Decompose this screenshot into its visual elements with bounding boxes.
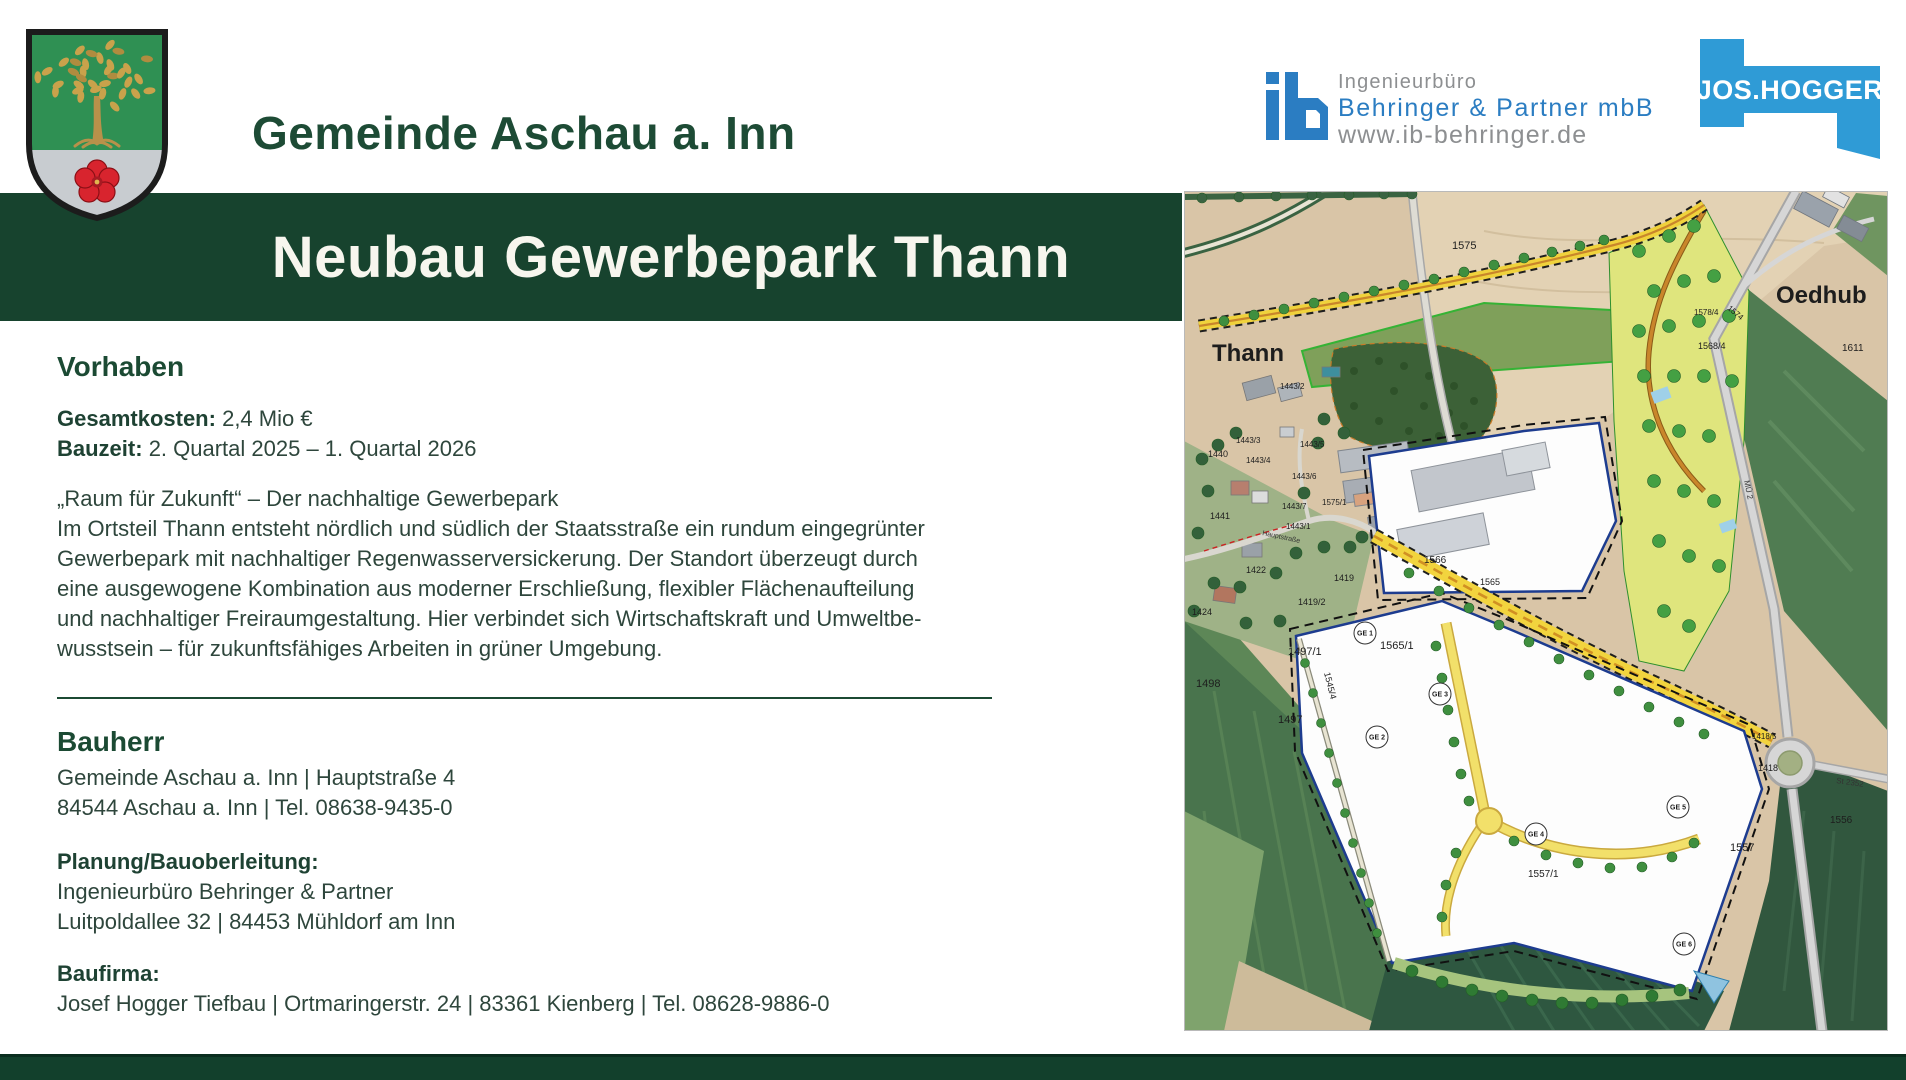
municipality-name: Gemeinde Aschau a. Inn [252, 106, 796, 160]
tree-icon [1192, 527, 1204, 539]
tree-icon [1678, 485, 1691, 498]
tree-icon [1434, 586, 1444, 596]
tree-icon [1466, 984, 1478, 996]
tree-icon [1407, 191, 1417, 199]
tree-icon [1456, 769, 1466, 779]
tree-icon [1547, 247, 1557, 257]
tree-icon [1443, 705, 1453, 715]
map-parcel-label: 1575/1 [1322, 498, 1347, 507]
map-parcel-label: 1565/1 [1380, 640, 1414, 652]
tree-icon [1309, 298, 1319, 308]
tree-icon [1584, 670, 1594, 680]
tree-icon [1699, 729, 1709, 739]
tree-icon [1240, 617, 1252, 629]
map-parcel-label: 1418/5 [1752, 732, 1777, 741]
tree-icon [1339, 292, 1349, 302]
tree-icon [1524, 637, 1534, 647]
tree-icon [1663, 230, 1676, 243]
tree-icon [1653, 535, 1666, 548]
baufirma-address: Josef Hogger Tiefbau | Ortmaringerstr. 2… [57, 989, 1017, 1019]
map-parcel-label: 1443/1 [1286, 522, 1311, 531]
vorhaben-heading: Vorhaben [57, 350, 1017, 384]
map-parcel-label: 1418 [1758, 763, 1778, 773]
tree-icon [1586, 997, 1598, 1009]
project-description: „Raum für Zukunft“ – Der nachhaltige Gew… [57, 484, 1017, 664]
map-parcel-label: 1443/4 [1246, 456, 1271, 465]
tree-icon [1668, 370, 1681, 383]
map-parcel-label: 1575 [1452, 240, 1476, 252]
tree-icon [1459, 267, 1469, 277]
coat-of-arms [23, 26, 171, 224]
ib-logo-website: www.ib-behringer.de [1338, 122, 1654, 148]
title-banner: Neubau Gewerbepark Thann [0, 193, 1182, 321]
tree-icon [1708, 270, 1721, 283]
tree-icon [1573, 858, 1583, 868]
tree-icon [1614, 686, 1624, 696]
tree-icon [1648, 285, 1661, 298]
tree-icon [1658, 605, 1671, 618]
tree-icon [1369, 286, 1379, 296]
tree-icon [1509, 836, 1519, 846]
tree-icon [1575, 241, 1585, 251]
project-title: Neubau Gewerbepark Thann [0, 224, 1182, 291]
map-ge-label: GE 2 [1369, 735, 1385, 742]
tree-icon [1404, 568, 1414, 578]
planung-label: Planung/Bauoberleitung: [57, 847, 1017, 877]
ib-logo-line1: Ingenieurbüro [1338, 72, 1654, 93]
tree-icon [1309, 689, 1318, 698]
fact-bauzeit: Bauzeit: 2. Quartal 2025 – 1. Quartal 20… [57, 434, 1017, 464]
description-line: und nachhaltiger Freiraumgestaltung. Hie… [57, 604, 1017, 634]
tree-icon [1643, 420, 1656, 433]
ib-logo-icon [1266, 72, 1330, 140]
tree-icon [1667, 852, 1677, 862]
map-parcel-label: 1557 [1730, 842, 1754, 854]
map-parcel-label: 1497/1 [1288, 646, 1322, 658]
planung-address: Ingenieurbüro Behringer & Partner Luitpo… [57, 877, 1017, 937]
tree-icon [1437, 912, 1447, 922]
tree-icon [1637, 862, 1647, 872]
tree-icon [1274, 615, 1286, 627]
facts-block: Gesamtkosten: 2,4 Mio € Bauzeit: 2. Quar… [57, 404, 1017, 464]
description-line: wusstsein – für zukunftsfähiges Arbeiten… [57, 634, 1017, 664]
tree-icon [1449, 737, 1459, 747]
description-line: „Raum für Zukunft“ – Der nachhaltige Gew… [57, 484, 1017, 514]
tree-icon [1703, 430, 1716, 443]
description-line: Im Ortsteil Thann entsteht nördlich und … [57, 514, 1017, 544]
map-parcel-label: 1497 [1278, 714, 1302, 726]
map-ge-label: GE 1 [1357, 631, 1373, 638]
tree-icon [1599, 235, 1609, 245]
tree-icon [1633, 245, 1646, 258]
footer-bar [0, 1054, 1906, 1080]
map-ge-label: GE 5 [1670, 805, 1686, 812]
fact-label: Gesamtkosten: [57, 406, 216, 431]
map-ge-label: GE 4 [1528, 832, 1544, 839]
tree-icon [1464, 603, 1474, 613]
tree-icon [1271, 191, 1281, 201]
fact-value: 2,4 Mio € [222, 406, 313, 431]
tree-icon [1333, 779, 1342, 788]
tree-icon [1441, 880, 1451, 890]
tree-icon [1234, 192, 1244, 202]
tree-icon [1325, 749, 1334, 758]
tree-icon [1290, 547, 1302, 559]
map-parcel-label: 1443/3 [1236, 436, 1261, 445]
tree-icon [1431, 641, 1441, 651]
jos-hogger-logo: JOS.HOGGER [1698, 36, 1882, 162]
map-parcel-label: 1443/6 [1292, 472, 1317, 481]
map-parcel-label: 1568/4 [1698, 341, 1726, 351]
tree-icon [1208, 577, 1220, 589]
map-parcel-label: 1422 [1246, 565, 1266, 575]
map-place-label: Oedhub [1776, 282, 1867, 309]
map-parcel-label: 1565 [1480, 577, 1500, 587]
tree-icon [1357, 869, 1366, 878]
tree-icon [1489, 260, 1499, 270]
tree-icon [1437, 673, 1447, 683]
map-parcel-label: 1424 [1192, 607, 1212, 617]
tree-icon [1379, 191, 1389, 199]
tree-icon [1683, 620, 1696, 633]
tree-icon [1726, 375, 1739, 388]
tree-icon [1605, 863, 1615, 873]
tree-icon [1338, 427, 1350, 439]
tree-icon [1344, 541, 1356, 553]
tree-icon [1526, 994, 1538, 1006]
construction-sign-poster: Gemeinde Aschau a. Inn Ingenieurbüro Beh… [0, 0, 1906, 1080]
tree-icon [1646, 990, 1658, 1002]
map-parcel-label: 1441 [1210, 511, 1230, 521]
map-ge-label: GE 6 [1676, 942, 1692, 949]
tree-icon [1556, 997, 1568, 1009]
tree-icon [1219, 316, 1229, 326]
map-ge-label: GE 3 [1432, 692, 1448, 699]
info-column: Vorhaben Gesamtkosten: 2,4 Mio € Bauzeit… [57, 350, 1017, 1019]
map-parcel-label: 1443/5 [1300, 440, 1325, 449]
map-parcel-label: 1611 [1842, 343, 1864, 354]
map-parcel-label: 1557/1 [1528, 869, 1559, 880]
tree-icon [1698, 370, 1711, 383]
map-place-label: Thann [1212, 340, 1284, 367]
map-parcel-label: 1419/2 [1298, 597, 1326, 607]
description-line: Gewerbepark mit nachhaltiger Regenwasser… [57, 544, 1017, 574]
tree-icon [1202, 485, 1214, 497]
tree-icon [1349, 839, 1358, 848]
tree-icon [1688, 220, 1701, 233]
baufirma-label: Baufirma: [57, 959, 1017, 989]
map-parcel-label: 1566 [1424, 555, 1447, 566]
tree-icon [1713, 560, 1726, 573]
tree-icon [1298, 487, 1310, 499]
tree-icon [1301, 659, 1310, 668]
map-parcel-label: 1443/2 [1280, 382, 1305, 391]
tree-icon [1317, 719, 1326, 728]
tree-icon [1678, 275, 1691, 288]
map-parcel-label: 1578/4 [1694, 308, 1719, 317]
tree-icon [1644, 702, 1654, 712]
tree-icon [1406, 965, 1418, 977]
tree-icon [1356, 531, 1368, 543]
tree-icon [1494, 620, 1504, 630]
tree-icon [1279, 304, 1289, 314]
fact-gesamtkosten: Gesamtkosten: 2,4 Mio € [57, 404, 1017, 434]
address-line: Ingenieurbüro Behringer & Partner [57, 877, 1017, 907]
tree-icon [1541, 850, 1551, 860]
address-line: Josef Hogger Tiefbau | Ortmaringerstr. 2… [57, 989, 1017, 1019]
tree-icon [1197, 193, 1207, 203]
address-line: Gemeinde Aschau a. Inn | Hauptstraße 4 [57, 763, 1017, 793]
tree-icon [1365, 899, 1374, 908]
bauherr-address: Gemeinde Aschau a. Inn | Hauptstraße 4 8… [57, 763, 1017, 823]
tree-icon [1519, 253, 1529, 263]
fact-label: Bauzeit: [57, 436, 143, 461]
tree-icon [1196, 453, 1208, 465]
tree-icon [1648, 475, 1661, 488]
tree-icon [1554, 654, 1564, 664]
tree-icon [1689, 838, 1699, 848]
map-parcel-label: 1556 [1830, 815, 1853, 826]
tree-icon [1341, 809, 1350, 818]
ib-behringer-logo: Ingenieurbüro Behringer & Partner mbB ww… [1266, 72, 1654, 148]
map-parcel-label: 1419 [1334, 573, 1354, 583]
tree-icon [1673, 425, 1686, 438]
tree-icon [1307, 191, 1317, 200]
tree-icon [1638, 370, 1651, 383]
tree-icon [1674, 984, 1686, 996]
ib-logo-line2: Behringer & Partner mbB [1338, 95, 1654, 121]
tree-icon [1663, 320, 1676, 333]
site-plan-aerial-map: ThannOedhub157516111578/41568/4157415661… [1184, 191, 1888, 1031]
tree-icon [1674, 717, 1684, 727]
divider-line [57, 697, 992, 699]
map-parcel-label: 1443/7 [1282, 502, 1307, 511]
fact-value: 2. Quartal 2025 – 1. Quartal 2026 [149, 436, 477, 461]
tree-icon [1708, 495, 1721, 508]
tree-icon [1344, 191, 1354, 200]
bauherr-heading: Bauherr [57, 725, 1017, 759]
address-line: Luitpoldallee 32 | 84453 Mühldorf am Inn [57, 907, 1017, 937]
tree-icon [1464, 796, 1474, 806]
tree-icon [1318, 541, 1330, 553]
tree-icon [1436, 976, 1448, 988]
map-parcel-label: 1440 [1208, 449, 1228, 459]
tree-icon [1451, 848, 1461, 858]
tree-icon [1616, 994, 1628, 1006]
tree-icon [1234, 581, 1246, 593]
tree-icon [1318, 413, 1330, 425]
address-line: 84544 Aschau a. Inn | Tel. 08638-9435-0 [57, 793, 1017, 823]
tree-icon [1399, 280, 1409, 290]
map-parcel-label: 1498 [1196, 678, 1220, 690]
tree-icon [1633, 325, 1646, 338]
description-line: eine ausgewogene Kombination aus moderne… [57, 574, 1017, 604]
tree-icon [1429, 274, 1439, 284]
jos-hogger-logo-text: JOS.HOGGER [1698, 75, 1882, 105]
tree-icon [1373, 929, 1382, 938]
tree-icon [1683, 550, 1696, 563]
tree-icon [1496, 990, 1508, 1002]
tree-icon [1270, 567, 1282, 579]
tree-icon [1249, 310, 1259, 320]
